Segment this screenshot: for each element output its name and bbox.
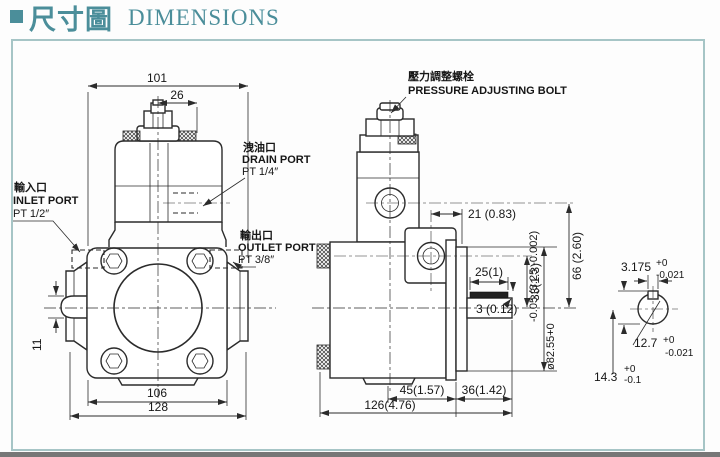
overall-height-plus: +0: [624, 364, 636, 375]
lock-knurl-left: [123, 131, 140, 141]
catalog-page: 尺寸圖 DIMENSIONS: [0, 0, 720, 457]
dim-36-label: 36(1.42): [462, 383, 507, 397]
side-port-upper: [317, 244, 330, 268]
inlet-label-en: INLET PORT: [13, 195, 79, 207]
spring-housing: [115, 141, 222, 222]
dim-dia-metric: ø82.55+0: [545, 323, 557, 370]
dim-11-label: 11: [30, 338, 44, 351]
mounting-flange-side: [446, 240, 456, 380]
front-view: 101 26 106 128: [13, 71, 316, 420]
outlet-boss: [227, 262, 248, 350]
dim-106-label: 106: [147, 386, 167, 400]
shaft-dia-minus: -0.021: [665, 348, 694, 359]
overall-height-value: 14.3: [594, 370, 618, 384]
dim-overall-height: 14.3 +0 -0.1: [594, 282, 647, 386]
key-width-value: 3.175: [621, 260, 651, 274]
dim-66: 66 (2.60): [569, 204, 584, 307]
drain-thread: PT 1/4″: [242, 166, 278, 178]
dim-11: 11: [30, 281, 64, 351]
dim-25: 25(1): [470, 265, 508, 290]
inlet-label-zh: 輸入口: [14, 180, 47, 194]
dim-21-label: 21 (0.83): [468, 207, 516, 221]
dim-66-label: 66 (2.60): [570, 232, 584, 280]
inlet-spigot: [61, 296, 87, 318]
dim-25-label: 25(1): [475, 265, 503, 279]
dim-101-label: 101: [147, 71, 167, 85]
dim-128-label: 128: [148, 400, 168, 414]
overall-height-minus: -0.1: [624, 375, 642, 386]
inlet-thread: PT 1/2″: [13, 208, 49, 220]
dim-key-width: 3.175 +0 -0.021: [621, 258, 685, 289]
outlet-thread: PT 3/8″: [238, 254, 274, 266]
shaft-key-detail: 3.175 +0 -0.021 12.7 +0 -0.021 14.3 +0 -…: [594, 258, 694, 386]
technical-drawing: 101 26 106 128: [0, 0, 720, 457]
side-view: 21 (0.83) 66 (2.60) 33(1.3) ø82.55+0 -0.…: [312, 69, 584, 417]
shaft-dia-plus: +0: [663, 335, 675, 346]
pressure-bolt-en: PRESSURE ADJUSTING BOLT: [408, 85, 567, 97]
inlet-port-label: 輸入口 INLET PORT PT 1/2″: [13, 180, 80, 252]
dim-dia-tol: -0.05 (3.25 -0.002): [528, 231, 540, 322]
pressure-bolt-label: 壓力調整螺栓 PRESSURE ADJUSTING BOLT: [391, 69, 567, 113]
page-bottom-edge: [0, 452, 720, 457]
dim-26-label: 26: [170, 88, 184, 102]
outlet-label-zh: 輸出口: [240, 228, 273, 242]
lock-knurl-right: [179, 131, 196, 141]
pilot-spigot: [456, 247, 467, 371]
shaft-dia-value: 12.7: [634, 336, 658, 350]
pressure-bolt-zh: 壓力調整螺栓: [408, 69, 474, 83]
dim-126-label: 126(4.76): [364, 398, 415, 412]
shaft-key: [470, 292, 508, 298]
mounting-flange: [87, 248, 227, 378]
outlet-port-label: 輸出口 OUTLET PORT PT 3/8″: [233, 228, 316, 267]
dim-45-label: 45(1.57): [400, 383, 445, 397]
side-port-lower: [317, 345, 330, 369]
key-width-minus: -0.021: [656, 270, 685, 281]
key-width-plus: +0: [656, 258, 668, 269]
dim-3-label: 3 (0.12): [476, 302, 517, 316]
drain-label-zh: 洩油口: [243, 140, 276, 154]
outlet-label-en: OUTLET PORT: [238, 242, 316, 254]
drain-label-en: DRAIN PORT: [242, 154, 311, 166]
